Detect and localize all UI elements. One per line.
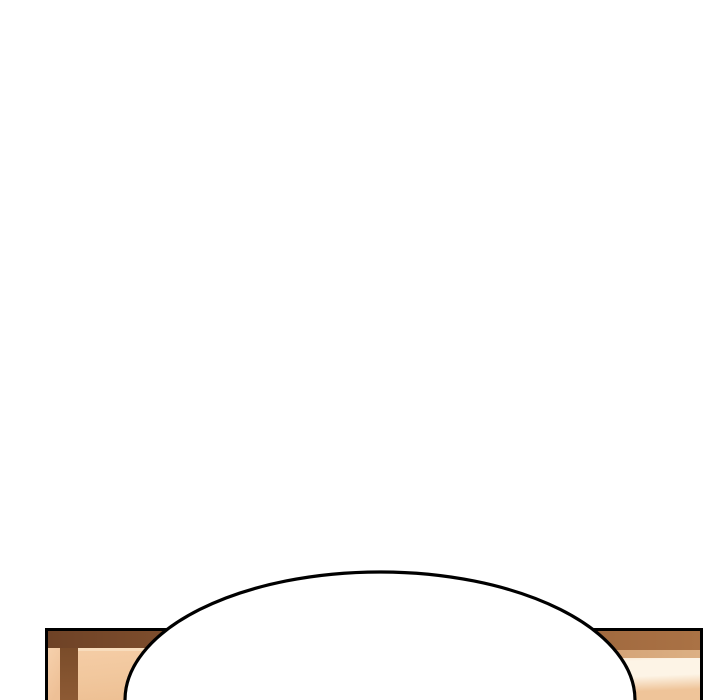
comic-page [0, 0, 720, 700]
panel-scene [0, 0, 720, 700]
left-cabinet-center-stile [60, 648, 78, 700]
left-cabinet-side-stile [48, 648, 60, 700]
